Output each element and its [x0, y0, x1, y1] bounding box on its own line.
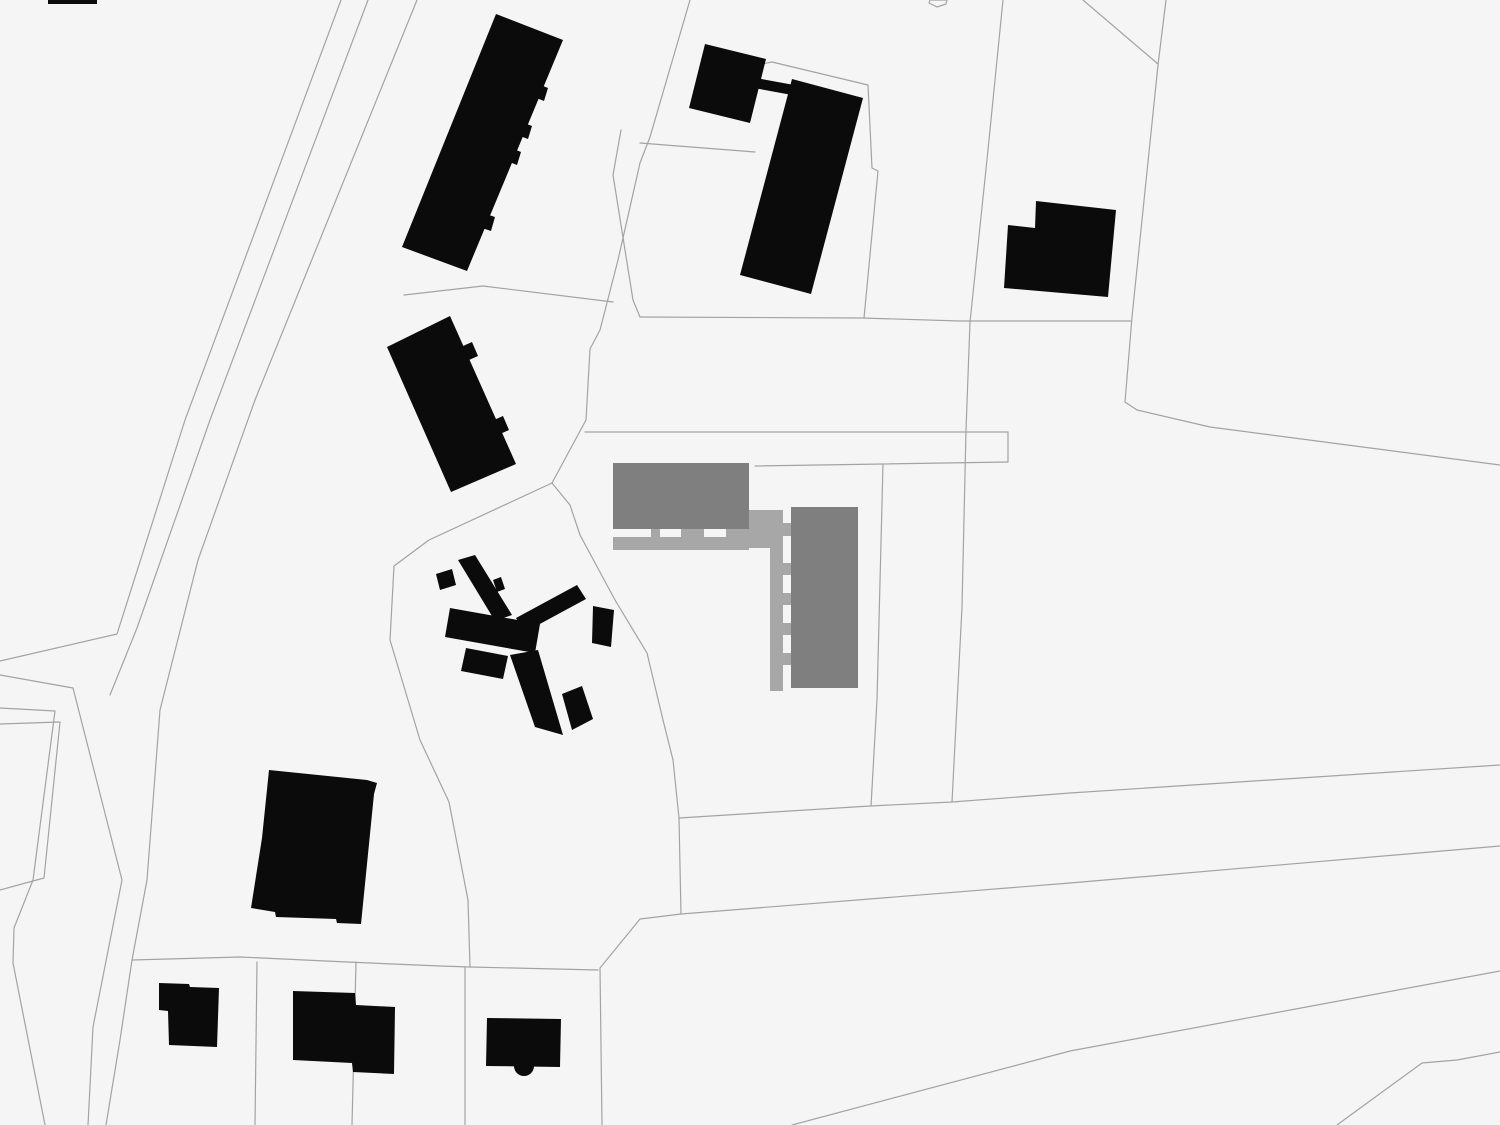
building-small-house-3-apse — [514, 1056, 534, 1076]
project-gallery-tab-a — [651, 529, 660, 537]
project-building-east-wing — [791, 507, 858, 688]
building-southwest-large — [251, 770, 377, 924]
project-gallery-tab-5 — [783, 653, 791, 665]
project-gallery-strip-vertical — [770, 548, 783, 691]
project-corner-square — [749, 510, 783, 548]
map-background — [0, 0, 1500, 1125]
building-edge-fragment-top — [48, 0, 97, 4]
site-plan — [0, 0, 1500, 1125]
project-building-north-wing — [613, 463, 749, 529]
project-gallery-tab-b — [681, 529, 704, 537]
project-gallery-tab-1 — [783, 523, 791, 536]
project-gallery-tab-2 — [783, 563, 791, 575]
building-cross-arm-block — [592, 606, 614, 647]
project-gallery-right-block — [726, 529, 749, 550]
building-cross-apse — [476, 660, 491, 675]
project-gallery-tab-3 — [783, 593, 791, 605]
site-plan-svg — [0, 0, 1500, 1125]
project-gallery-tab-4 — [783, 623, 791, 635]
